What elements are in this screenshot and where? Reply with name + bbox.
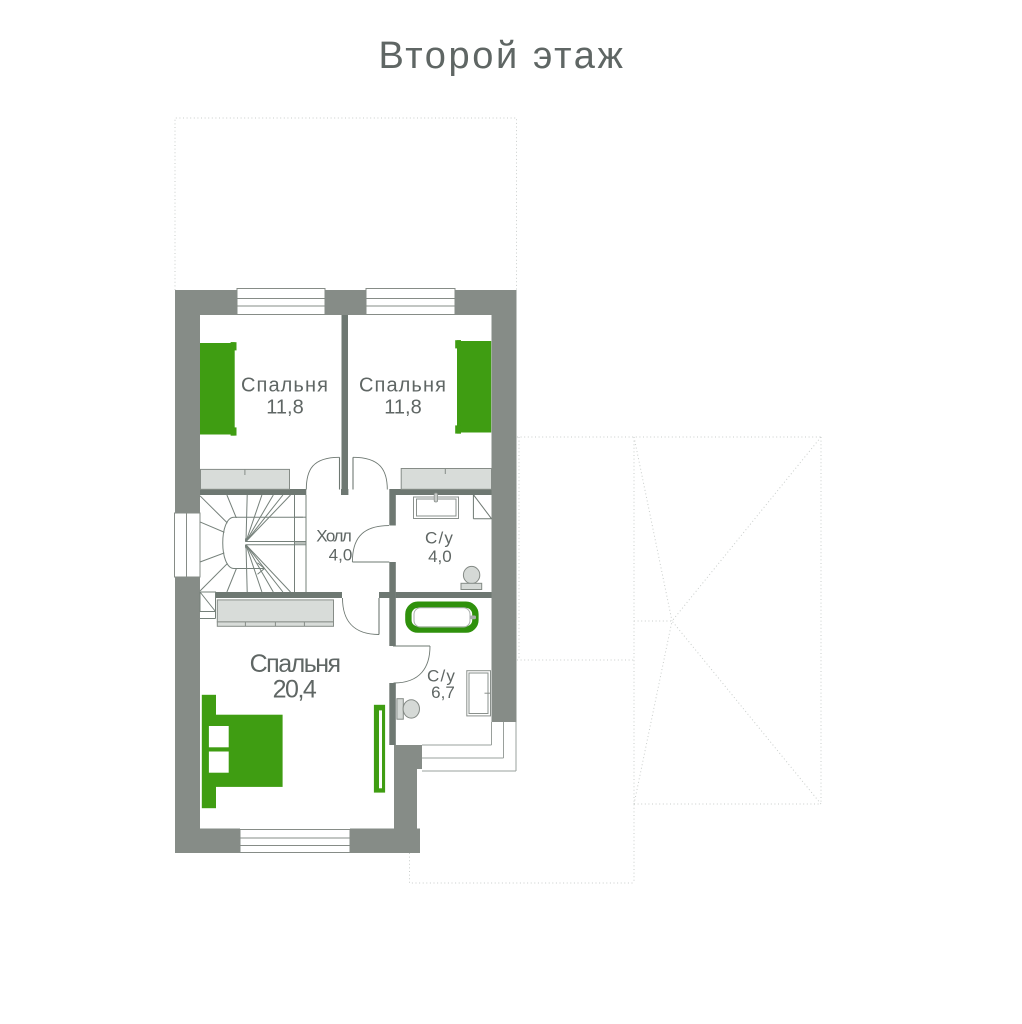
svg-text:4,0: 4,0 bbox=[428, 547, 452, 566]
svg-text:11,8: 11,8 bbox=[266, 397, 303, 419]
svg-text:Спальня: Спальня bbox=[241, 375, 329, 397]
svg-text:Второй этаж: Второй этаж bbox=[379, 35, 626, 77]
svg-text:Холл: Холл bbox=[316, 527, 351, 546]
svg-text:4,0: 4,0 bbox=[329, 546, 353, 565]
svg-text:20,4: 20,4 bbox=[273, 676, 317, 704]
svg-text:6,7: 6,7 bbox=[431, 683, 455, 702]
svg-text:Спальня: Спальня bbox=[359, 375, 447, 397]
svg-text:11,8: 11,8 bbox=[384, 397, 421, 419]
svg-text:Спальня: Спальня bbox=[250, 650, 340, 678]
svg-text:С/у: С/у bbox=[425, 529, 454, 548]
